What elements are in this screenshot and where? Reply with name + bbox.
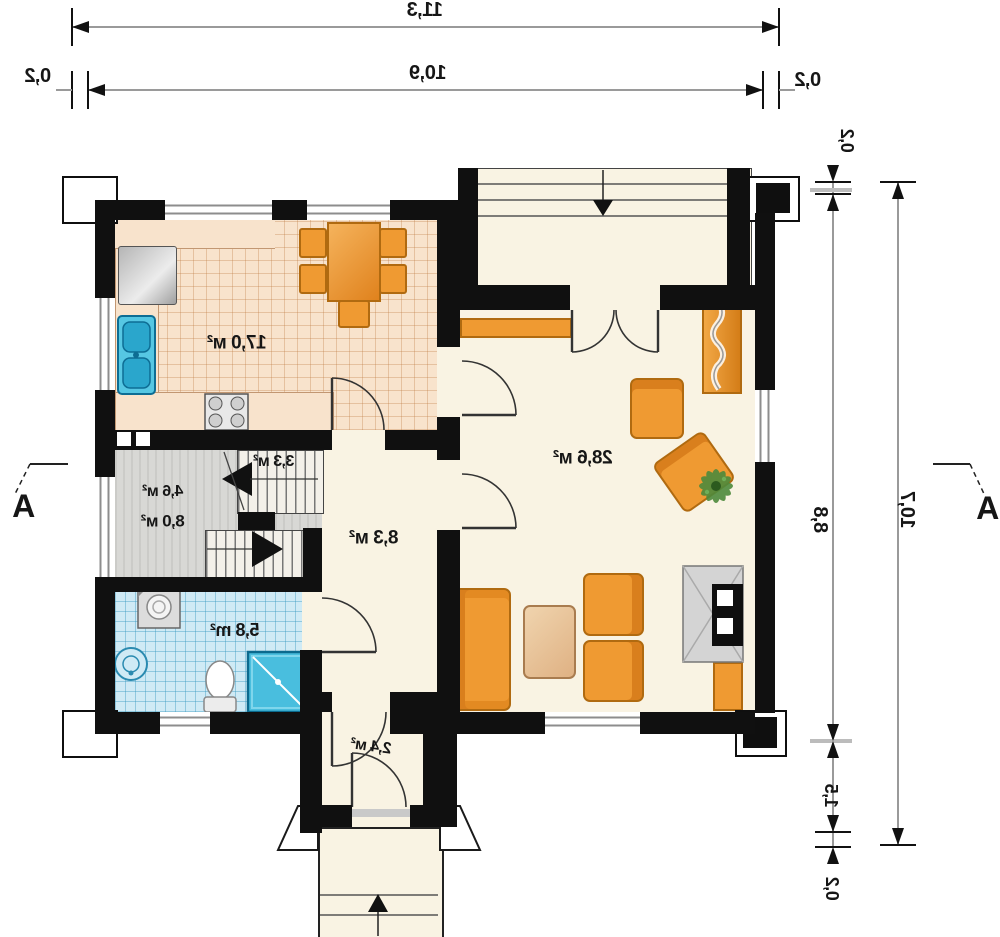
plant-icon <box>699 469 734 504</box>
corner-pillar-core <box>756 183 790 213</box>
room-label-living: 28,6 м² <box>553 449 612 468</box>
dimension-lines-top <box>56 8 795 109</box>
room-label-stairs-upper: 4,6 м² <box>143 484 184 500</box>
floor-plan: 17,0 м² 28,6 м² 8,3 м² 3,3 м² 4,6 м² 8,0… <box>0 0 1000 937</box>
room-label-hall: 8,3 м² <box>349 529 398 548</box>
section-label-left: A <box>13 490 36 522</box>
wall-stairs-hall <box>303 528 322 577</box>
room-label-bathroom: 5,8 m² <box>210 621 259 639</box>
wall-stairs-bath <box>115 577 322 592</box>
wall-vestibule-right <box>423 712 457 807</box>
window <box>95 298 115 390</box>
window <box>307 200 390 220</box>
dim-total-width: 11,3 <box>407 0 443 20</box>
wall-top <box>95 200 460 220</box>
terrace-parapet-left <box>458 168 478 302</box>
window <box>755 390 775 462</box>
window <box>160 712 210 734</box>
wall-kitchen-hall-b <box>385 430 460 450</box>
room-label-kitchen: 17,0 м² <box>207 334 266 353</box>
wall-vestibule-bottom-a <box>300 805 352 827</box>
section-label-right: A <box>977 492 1000 524</box>
window <box>545 712 640 734</box>
room-label-stairs-lower: 8,0 м² <box>141 513 185 530</box>
chimney-flue <box>117 432 131 446</box>
dim-total-height: 10,7 <box>897 492 917 529</box>
dim-inner-width: 10,9 <box>410 63 447 83</box>
dim-inner-height: 8,8 <box>810 507 830 533</box>
wall-terrace-living-a <box>437 285 570 310</box>
washing-machine <box>138 586 180 628</box>
fireplace <box>683 566 743 662</box>
dim-wall-top: 0,2 <box>838 129 856 153</box>
kitchen-sink <box>118 316 155 394</box>
wall-hall-vestibule-a <box>322 692 332 712</box>
shower <box>248 652 307 712</box>
wall-right <box>755 213 775 713</box>
bathroom-sink <box>115 648 147 680</box>
window <box>95 477 115 577</box>
toilet <box>204 661 236 712</box>
stove <box>205 394 248 430</box>
dim-wall-left: 0,2 <box>25 66 51 86</box>
dim-porch-height: 1,5 <box>822 784 840 808</box>
terrace-arrow-icon <box>593 170 613 216</box>
terrace-parapet-right <box>727 168 750 302</box>
dim-wall-right: 0,2 <box>795 70 821 90</box>
window <box>165 200 272 220</box>
dim-wall-bottom: 0,2 <box>823 877 841 901</box>
wall-left <box>95 220 115 713</box>
wall-hall-living <box>437 530 460 712</box>
stairs-landing-edge <box>238 512 275 530</box>
chimney-flue <box>136 432 150 446</box>
wall-kitchen-living-a <box>437 220 460 347</box>
wall-vestibule-bottom-b <box>410 805 457 827</box>
room-label-landing: 3,3 м² <box>254 454 295 470</box>
